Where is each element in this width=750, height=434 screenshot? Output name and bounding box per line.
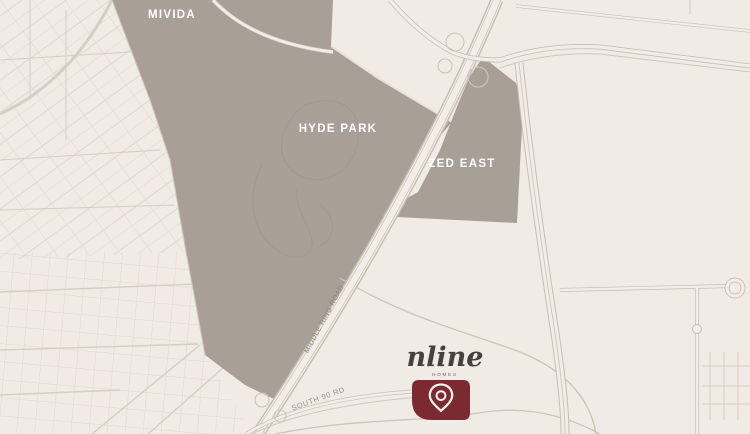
nline-logo: nline HOMES [407,342,484,377]
location-marker [412,380,470,420]
district-label-mivida: MIVIDA [148,9,196,21]
map-canvas: MIVIDA HYDE PARK ZED EAST MIDDLE RING RO… [0,0,750,434]
district-label-zed-east: ZED EAST [428,158,495,170]
location-map: MIVIDA HYDE PARK ZED EAST MIDDLE RING RO… [0,0,750,434]
district-label-hyde-park: HYDE PARK [299,123,378,135]
nline-logo-text: nline [407,342,484,373]
nline-logo-tagline: HOMES [432,372,458,377]
